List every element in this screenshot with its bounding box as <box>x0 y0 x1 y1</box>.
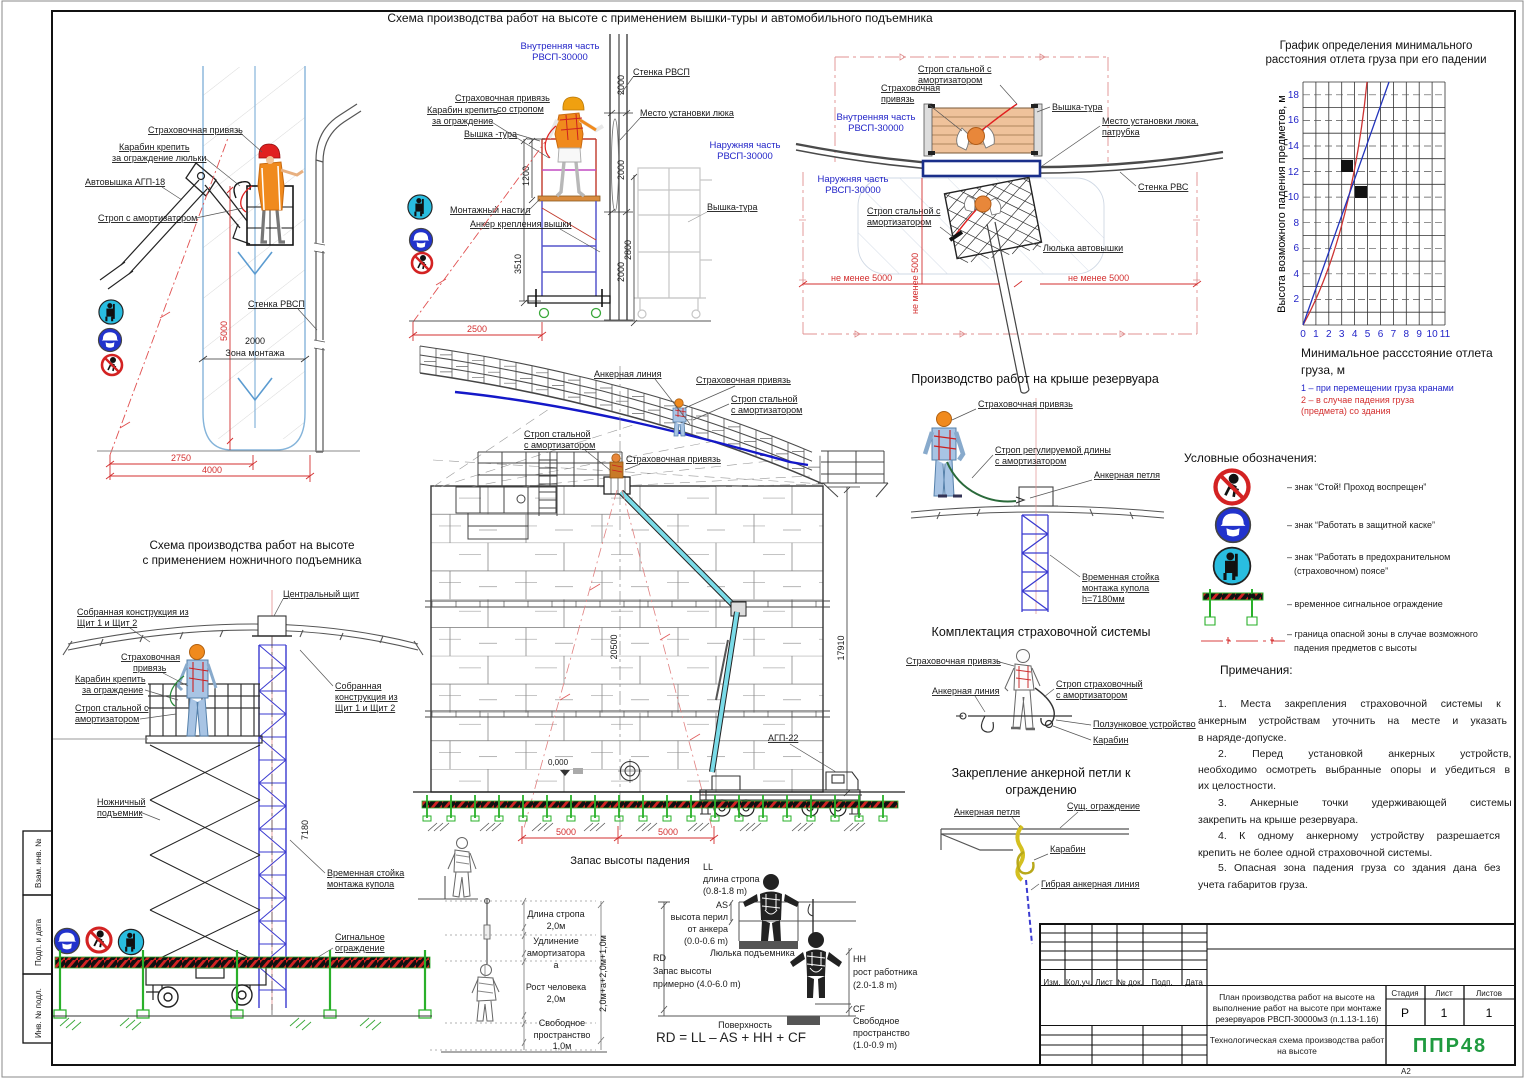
svg-text:1: 1 <box>1486 1006 1493 1020</box>
svg-text:Удлинение: Удлинение <box>533 936 579 946</box>
svg-text:CF: CF <box>853 1004 865 1014</box>
svg-text:Строп стальной: Строп стальной <box>524 429 590 439</box>
svg-text:не менее 5000: не менее 5000 <box>831 273 892 283</box>
svg-text:Рост человека: Рост человека <box>526 982 586 992</box>
svg-text:Вышка-тура: Вышка-тура <box>707 202 757 212</box>
svg-text:RD: RD <box>653 953 666 963</box>
svg-text:с амортизатором: с амортизатором <box>731 405 802 415</box>
svg-text:(0.0-0.6 m): (0.0-0.6 m) <box>684 936 728 946</box>
svg-text:Временная стойка: Временная стойка <box>327 868 404 878</box>
svg-text:7: 7 <box>1391 329 1397 340</box>
svg-text:1: 1 <box>1441 1006 1448 1020</box>
svg-text:груза, м: груза, м <box>1301 363 1345 377</box>
svg-text:10: 10 <box>1427 329 1439 340</box>
svg-text:2000: 2000 <box>245 336 265 346</box>
svg-text:с амортизатором: с амортизатором <box>995 456 1066 466</box>
svg-text:2. Перед установкой анкерных у: 2. Перед установкой анкерных устройств, <box>1218 748 1511 760</box>
svg-text:2: 2 <box>1293 294 1299 305</box>
svg-text:Ползунковое устройство: Ползунковое устройство <box>1093 719 1196 729</box>
svg-text:пространство: пространство <box>534 1030 591 1040</box>
svg-text:2000: 2000 <box>616 160 626 180</box>
svg-text:Стадия: Стадия <box>1391 989 1418 998</box>
svg-text:Технологическая схема производ: Технологическая схема производства работ <box>1210 1035 1385 1045</box>
svg-text:подъемник: подъемник <box>97 808 143 818</box>
svg-text:высота перил: высота перил <box>671 912 728 922</box>
svg-text:(0.8-1.8 m): (0.8-1.8 m) <box>703 886 747 896</box>
svg-text:5000: 5000 <box>219 321 229 341</box>
svg-text:2,0м: 2,0м <box>547 994 566 1004</box>
svg-text:Место установки люка: Место установки люка <box>640 108 734 118</box>
svg-text:не менее 5000: не менее 5000 <box>910 253 920 314</box>
svg-text:с амортизатором: с амортизатором <box>1056 690 1127 700</box>
svg-text:2,0м: 2,0м <box>547 921 566 931</box>
svg-text:10: 10 <box>1288 192 1300 203</box>
svg-text:6: 6 <box>1378 329 1384 340</box>
svg-text:Карабин крепить: Карабин крепить <box>119 142 190 152</box>
svg-text:Схема производства работ на вы: Схема производства работ на высоте <box>149 539 354 552</box>
svg-text:Кол.уч.: Кол.уч. <box>1066 978 1092 987</box>
svg-text:Комплектация страховочной сист: Комплектация страховочной системы <box>932 625 1151 639</box>
svg-text:амортизатором: амортизатором <box>75 714 139 724</box>
svg-text:Лист: Лист <box>1095 978 1113 987</box>
svg-text:Свободное: Свободное <box>539 1018 585 1028</box>
svg-text:2000: 2000 <box>616 262 626 282</box>
svg-text:Строп страховочный: Строп страховочный <box>1056 679 1143 689</box>
svg-text:резервуаров РВСП-30000м3 (п.1.: резервуаров РВСП-30000м3 (п.1.13-1.16) <box>1215 1014 1378 1024</box>
svg-text:7180: 7180 <box>300 820 310 840</box>
svg-text:8: 8 <box>1404 329 1410 340</box>
svg-text:5. Опасная зона падения груза: 5. Опасная зона падения груза со здания … <box>1218 862 1500 874</box>
svg-text:LL: LL <box>703 862 713 872</box>
svg-text:3510: 3510 <box>513 254 523 274</box>
svg-text:Внутренняя часть: Внутренняя часть <box>521 41 600 52</box>
svg-text:№ док.: № док. <box>1117 978 1143 987</box>
svg-text:1. Места закрепления страховоч: 1. Места закрепления страховочной систем… <box>1218 698 1501 710</box>
svg-text:Страховочная привязь: Страховочная привязь <box>978 399 1073 409</box>
svg-text:Страховочная привязь: Страховочная привязь <box>696 375 791 385</box>
svg-text:Высота возможного падения пред: Высота возможного падения предметов, м <box>1276 95 1288 313</box>
svg-text:2: 2 <box>1326 329 1332 340</box>
svg-text:Строп регулируемой длины: Строп регулируемой длины <box>995 445 1111 455</box>
svg-text:Минимальное рассстояние отлета: Минимальное рассстояние отлета <box>1301 346 1493 360</box>
svg-text:2,0м+а+2,0м+1,0м: 2,0м+а+2,0м+1,0м <box>598 935 608 1012</box>
svg-text:Запас высоты падения: Запас высоты падения <box>570 855 689 867</box>
svg-text:Строп стальной с: Строп стальной с <box>75 703 149 713</box>
svg-text:– знак “Работать в предохрани: – знак “Работать в предохранительном <box>1287 552 1450 562</box>
svg-text:монтажа купола: монтажа купола <box>327 879 394 889</box>
svg-text:а: а <box>553 960 558 970</box>
svg-text:Место установки люка,: Место установки люка, <box>1102 116 1198 126</box>
svg-text:2750: 2750 <box>171 453 191 463</box>
svg-text:16: 16 <box>1288 115 1300 126</box>
svg-text:за ограждение люльки: за ограждение люльки <box>112 153 206 163</box>
svg-text:Зона монтажа: Зона монтажа <box>225 348 284 358</box>
svg-text:ограждение: ограждение <box>335 943 385 953</box>
svg-text:2800: 2800 <box>623 240 633 260</box>
svg-text:анкерным устройствам уточнить: анкерным устройствам уточнить на месте и… <box>1198 715 1508 727</box>
svg-text:Наружняя часть: Наружняя часть <box>818 174 889 185</box>
svg-text:3. Анкерные точки удерживающей: 3. Анкерные точки удерживающей системы <box>1218 797 1512 809</box>
svg-text:Анкерная линия: Анкерная линия <box>932 686 1000 696</box>
svg-text:монтажа купола: монтажа купола <box>1082 583 1149 593</box>
svg-text:ограждению: ограждению <box>1005 783 1076 797</box>
svg-text:Временная стойка: Временная стойка <box>1082 572 1159 582</box>
svg-text:14: 14 <box>1288 141 1300 152</box>
svg-text:Щит 1 и Щит 2: Щит 1 и Щит 2 <box>335 703 395 713</box>
svg-text:(страховочном) поясе”: (страховочном) поясе” <box>1294 566 1388 576</box>
svg-text:5000: 5000 <box>658 827 678 837</box>
svg-text:на высоте: на высоте <box>1277 1046 1317 1056</box>
svg-text:Р: Р <box>1401 1006 1409 1020</box>
svg-text:3: 3 <box>1339 329 1345 340</box>
svg-text:Центральный щит: Центральный щит <box>283 589 359 599</box>
svg-text:учета габаритов груза.: учета габаритов груза. <box>1198 879 1308 891</box>
svg-text:RD = LL – AS + HH + CF: RD = LL – AS + HH + CF <box>656 1030 806 1045</box>
svg-text:Ножничный: Ножничный <box>97 797 146 807</box>
svg-text:Страховочная привязь: Страховочная привязь <box>626 454 721 464</box>
svg-text:Закрепление анкерной петли к: Закрепление анкерной петли к <box>952 766 1131 780</box>
svg-text:Люлька подъемника: Люлька подъемника <box>710 948 795 958</box>
svg-text:11: 11 <box>1440 329 1451 340</box>
svg-text:2000: 2000 <box>616 75 626 95</box>
svg-text:Люлька автовышки: Люлька автовышки <box>1043 243 1123 253</box>
svg-text:Вышка-тура: Вышка-тура <box>1052 102 1102 112</box>
svg-text:Собранная: Собранная <box>335 681 382 691</box>
svg-text:AS: AS <box>716 900 728 910</box>
svg-text:Запас высоты: Запас высоты <box>653 966 712 976</box>
svg-text:привязь: привязь <box>133 663 167 673</box>
svg-text:Наружняя часть: Наружняя часть <box>710 140 781 151</box>
svg-text:1200: 1200 <box>521 166 531 186</box>
svg-text:РВСП-30000: РВСП-30000 <box>717 151 773 162</box>
svg-text:Внутренняя часть: Внутренняя часть <box>837 112 916 123</box>
svg-text:Поверхность: Поверхность <box>718 1020 772 1030</box>
svg-text:0: 0 <box>1300 329 1306 340</box>
svg-text:со стропом: со стропом <box>497 104 544 114</box>
svg-text:18: 18 <box>1288 90 1300 101</box>
svg-text:закрепить на крыше резервуара.: закрепить на крыше резервуара. <box>1198 814 1358 826</box>
svg-text:1: 1 <box>1313 329 1319 340</box>
svg-text:20500: 20500 <box>609 634 619 659</box>
svg-text:h=7180мм: h=7180мм <box>1082 594 1125 604</box>
svg-text:конструкция из: конструкция из <box>335 692 398 702</box>
svg-text:Сигнальное: Сигнальное <box>335 932 385 942</box>
svg-text:Стенка РВСП: Стенка РВСП <box>248 299 305 309</box>
svg-text:Анкерная петля: Анкерная петля <box>1094 470 1160 480</box>
svg-text:амортизатора: амортизатора <box>527 948 585 958</box>
svg-text:их целостности.: их целостности. <box>1198 780 1276 792</box>
svg-text:Инв. № подл.: Инв. № подл. <box>34 988 43 1038</box>
svg-text:за ограждение: за ограждение <box>432 116 493 126</box>
svg-text:РВСП-30000: РВСП-30000 <box>532 52 588 63</box>
svg-text:Страховочная: Страховочная <box>881 83 940 93</box>
svg-text:– знак “Стой! Проход воспреще: – знак “Стой! Проход воспрещен” <box>1287 482 1426 492</box>
svg-text:5000: 5000 <box>556 827 576 837</box>
svg-text:рост работника: рост работника <box>853 967 917 977</box>
svg-text:График определения минимальног: График определения минимального <box>1280 40 1473 52</box>
svg-text:ППР48: ППР48 <box>1413 1035 1487 1057</box>
svg-text:Строп стальной с: Строп стальной с <box>867 206 941 216</box>
svg-text:– граница опасной зоны в случ: – граница опасной зоны в случае возможно… <box>1287 629 1478 639</box>
svg-text:4: 4 <box>1293 269 1299 280</box>
svg-text:А2: А2 <box>1401 1067 1411 1076</box>
svg-text:2500: 2500 <box>467 324 487 334</box>
svg-text:с амортизатором: с амортизатором <box>524 440 595 450</box>
svg-text:Листов: Листов <box>1476 989 1502 998</box>
svg-text:падения предметов с высоты: падения предметов с высоты <box>1294 643 1417 653</box>
svg-text:привязь: привязь <box>881 94 915 104</box>
svg-text:Страховочная: Страховочная <box>121 652 180 662</box>
svg-text:в наряде-допуске.: в наряде-допуске. <box>1198 732 1287 744</box>
svg-text:крепить не более одной страхов: крепить не более одной страховочной сист… <box>1198 847 1432 859</box>
svg-text:Строп с амортизатором: Строп с амортизатором <box>98 213 197 223</box>
svg-text:АГП-22: АГП-22 <box>768 733 798 743</box>
svg-text:(2.0-1.8 m): (2.0-1.8 m) <box>853 980 897 990</box>
svg-text:Дата: Дата <box>1185 978 1203 987</box>
svg-text:Подп. и дата: Подп. и дата <box>34 918 43 966</box>
svg-text:9: 9 <box>1416 329 1422 340</box>
svg-text:8: 8 <box>1293 218 1299 229</box>
svg-text:Карабин: Карабин <box>1093 735 1128 745</box>
svg-text:0,000: 0,000 <box>548 758 569 767</box>
svg-text:4: 4 <box>1352 329 1358 340</box>
svg-text:5: 5 <box>1365 329 1371 340</box>
svg-text:– временное сигнальное огражд: – временное сигнальное ограждение <box>1287 599 1443 609</box>
svg-text:Условные обозначения:: Условные обозначения: <box>1184 451 1317 465</box>
svg-text:Монтажный настил: Монтажный настил <box>450 205 530 215</box>
svg-text:Свободное: Свободное <box>853 1016 899 1026</box>
svg-text:12: 12 <box>1288 167 1300 178</box>
svg-text:длина стропа: длина стропа <box>703 874 760 884</box>
svg-text:Сущ. ограждение: Сущ. ограждение <box>1067 801 1140 811</box>
svg-text:от анкера: от анкера <box>688 924 728 934</box>
svg-text:необходимо осмотреть выбранные: необходимо осмотреть выбранные опоры и у… <box>1198 764 1510 776</box>
svg-text:Подп.: Подп. <box>1151 978 1172 987</box>
svg-text:Карабин крепить: Карабин крепить <box>75 674 146 684</box>
svg-text:Лист: Лист <box>1435 989 1453 998</box>
svg-text:Взам. инв. №: Взам. инв. № <box>34 838 43 888</box>
svg-text:1 – при перемещении груза кран: 1 – при перемещении груза кранами <box>1301 383 1454 393</box>
svg-text:План производства работ на выс: План производства работ на высоте на <box>1219 992 1375 1002</box>
svg-text:Страховочная привязь: Страховочная привязь <box>455 93 550 103</box>
svg-text:примерно (4.0-6.0 m): примерно (4.0-6.0 m) <box>653 979 741 989</box>
svg-text:РВСП-30000: РВСП-30000 <box>848 123 904 134</box>
svg-text:РВСП-30000: РВСП-30000 <box>825 185 881 196</box>
svg-text:Длина стропа: Длина стропа <box>527 909 584 919</box>
svg-text:17910: 17910 <box>836 635 846 660</box>
svg-text:Строп стальной с: Строп стальной с <box>918 64 992 74</box>
svg-text:расстояния отлета груза при ег: расстояния отлета груза при его падении <box>1265 54 1486 66</box>
svg-text:4. К одному анкерному устройст: 4. К одному анкерному устройству разреша… <box>1218 830 1500 842</box>
svg-text:4000: 4000 <box>202 465 222 475</box>
svg-text:Автовышка АГП-18: Автовышка АГП-18 <box>85 177 165 187</box>
svg-text:Строп стальной: Строп стальной <box>731 394 797 404</box>
svg-text:6: 6 <box>1293 243 1299 254</box>
svg-text:Стенка РВС: Стенка РВС <box>1138 182 1189 192</box>
svg-text:Карабин крепить: Карабин крепить <box>427 105 498 115</box>
svg-text:Примечания:: Примечания: <box>1220 663 1293 677</box>
svg-text:Анкерная петля: Анкерная петля <box>954 807 1020 817</box>
svg-text:Стенка РВСП: Стенка РВСП <box>633 67 690 77</box>
svg-text:(1.0-0.9 m): (1.0-0.9 m) <box>853 1040 897 1050</box>
svg-text:Схема производства работ на вы: Схема производства работ на высоте с при… <box>387 11 933 25</box>
svg-text:Карабин: Карабин <box>1050 844 1085 854</box>
svg-text:2 – в случае падения груза: 2 – в случае падения груза <box>1301 395 1414 405</box>
svg-text:Собранная конструкция из: Собранная конструкция из <box>77 607 189 617</box>
svg-text:Гибрая анкерная линия: Гибрая анкерная линия <box>1041 879 1140 889</box>
svg-text:Вышка -тура: Вышка -тура <box>464 129 517 139</box>
svg-text:пространство: пространство <box>853 1028 910 1038</box>
svg-text:выполнение работ на высоте при: выполнение работ на высоте при монтаже <box>1213 1003 1382 1013</box>
svg-text:с применением ножничного подъе: с применением ножничного подъемника <box>143 554 362 567</box>
svg-text:патрубка: патрубка <box>1102 127 1140 137</box>
svg-text:– знак “Работать в защитной к: – знак “Работать в защитной каске” <box>1287 520 1435 530</box>
svg-text:Страховочная привязь: Страховочная привязь <box>906 656 1001 666</box>
svg-text:Производство работ на крыше ре: Производство работ на крыше резервуара <box>911 372 1159 386</box>
svg-text:HH: HH <box>853 954 866 964</box>
svg-text:Анкерная линия: Анкерная линия <box>594 369 662 379</box>
svg-text:Страховочная привязь: Страховочная привязь <box>148 125 243 135</box>
svg-text:Изм.: Изм. <box>1043 978 1060 987</box>
svg-text:1,0м: 1,0м <box>553 1041 572 1051</box>
svg-text:за ограждение: за ограждение <box>82 685 143 695</box>
svg-text:(предмета) со здания: (предмета) со здания <box>1301 406 1391 416</box>
svg-text:не менее 5000: не менее 5000 <box>1068 273 1129 283</box>
svg-text:Щит 1 и Щит 2: Щит 1 и Щит 2 <box>77 618 137 628</box>
